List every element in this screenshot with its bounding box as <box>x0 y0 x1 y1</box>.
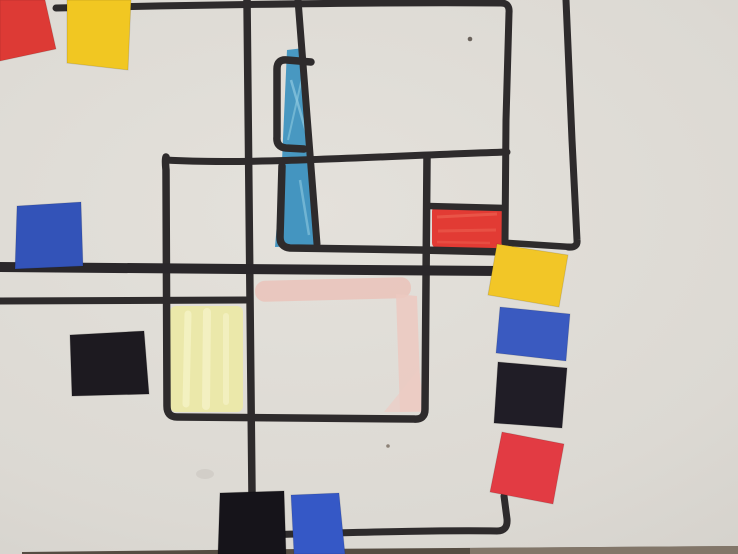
marker-left-lower-horizontal <box>0 300 246 301</box>
photo-of-paper-collage <box>0 0 738 554</box>
paper-square-blue-right <box>496 307 570 361</box>
paper-square-red-top-left <box>0 0 56 61</box>
crayon-red-streak <box>437 242 490 243</box>
marker-right-short-horizontal <box>509 243 571 247</box>
paper-square-blue-bottom <box>291 493 345 554</box>
crayon-red-streak <box>438 230 496 231</box>
paper-speck <box>468 37 473 42</box>
artwork-canvas <box>0 0 738 554</box>
marker-upper-horizontal <box>166 152 507 161</box>
paper-smudge <box>196 469 214 479</box>
paper-speck <box>386 444 390 448</box>
paper-square-red-right <box>490 432 564 504</box>
marker-red-box-top <box>428 206 505 208</box>
paper-square-yellow-right <box>488 244 568 307</box>
paper-square-black-bottom <box>218 491 286 554</box>
crayon-pink-band <box>255 277 411 302</box>
paper-square-yellow-top-left <box>67 0 131 70</box>
paper-square-black-right <box>494 362 567 428</box>
marker-thick-middle-horizontal <box>0 267 499 271</box>
paper-square-black-middle-left <box>70 331 149 396</box>
table-edge-band-light <box>470 546 738 554</box>
marker-right-vertical <box>566 0 577 247</box>
paper-square-blue-left <box>15 202 83 269</box>
crayon-yellow-streak <box>206 312 207 406</box>
crayon-yellow-streak <box>186 314 188 404</box>
